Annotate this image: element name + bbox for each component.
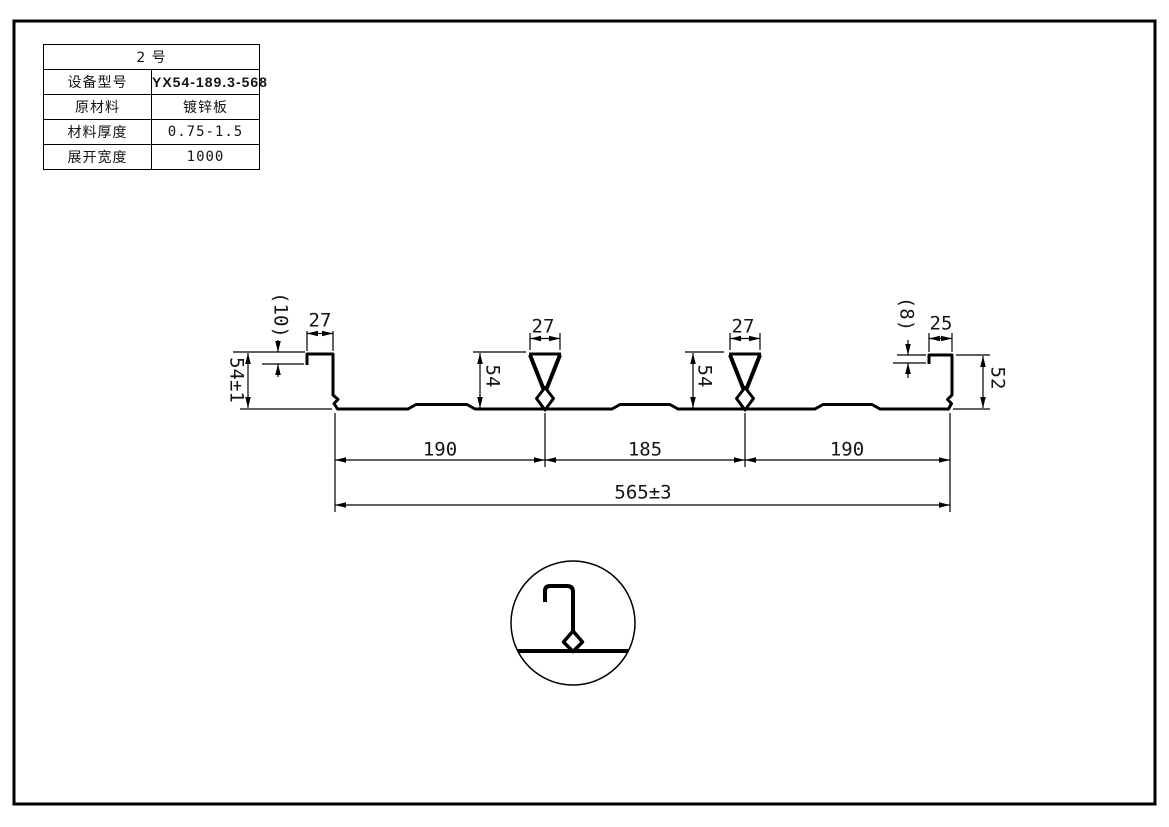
row-label: 设备型号: [44, 70, 152, 95]
profile-base-path: [307, 354, 952, 409]
thickness-value: 0.75-1.5: [152, 120, 260, 145]
drawing-number: 2 号: [44, 45, 260, 70]
dim-rib1-height: 54: [483, 365, 502, 388]
dim-pitch-middle: 185: [628, 441, 662, 460]
dim-rib2-top-width: 27: [732, 318, 755, 337]
drawing-sheet: 2 号 设备型号 YX54-189.3-568 原材料 镀锌板 材料厚度 0.7…: [0, 0, 1169, 827]
table-row: 原材料 镀锌板: [44, 95, 260, 120]
dim-right-web-height: 52: [988, 367, 1007, 390]
model-value: YX54-189.3-568: [152, 70, 260, 95]
table-row: 设备型号 YX54-189.3-568: [44, 70, 260, 95]
dim-left-flange-width: 27: [309, 312, 332, 331]
detail-hook: [545, 586, 573, 633]
dim-left-lip-height: (10): [271, 292, 290, 338]
material-value: 镀锌板: [152, 95, 260, 120]
row-label: 材料厚度: [44, 120, 152, 145]
table-row: 2 号: [44, 45, 260, 70]
table-row: 展开宽度 1000: [44, 145, 260, 170]
dim-overall-width: 565±3: [614, 484, 671, 503]
rib-2: [729, 354, 761, 410]
dim-rib1-top-width: 27: [532, 318, 555, 337]
coil-width-value: 1000: [152, 145, 260, 170]
dim-right-lip-height: (8): [897, 297, 916, 331]
profile-outline: [307, 354, 952, 410]
row-label: 展开宽度: [44, 145, 152, 170]
spec-table: 2 号 设备型号 YX54-189.3-568 原材料 镀锌板 材料厚度 0.7…: [43, 44, 260, 170]
dim-right-flange-width: 25: [930, 315, 953, 334]
dimension-lines: [233, 331, 990, 512]
rib-1: [529, 354, 561, 410]
dim-pitch-left: 190: [423, 441, 457, 460]
seam-detail: [511, 561, 635, 685]
dim-rib2-height: 54: [695, 365, 714, 388]
table-row: 材料厚度 0.75-1.5: [44, 120, 260, 145]
detail-seam-diamond: [564, 631, 583, 652]
dim-left-web-height: 54±1: [227, 357, 246, 403]
row-label: 原材料: [44, 95, 152, 120]
dim-pitch-right: 190: [830, 441, 864, 460]
